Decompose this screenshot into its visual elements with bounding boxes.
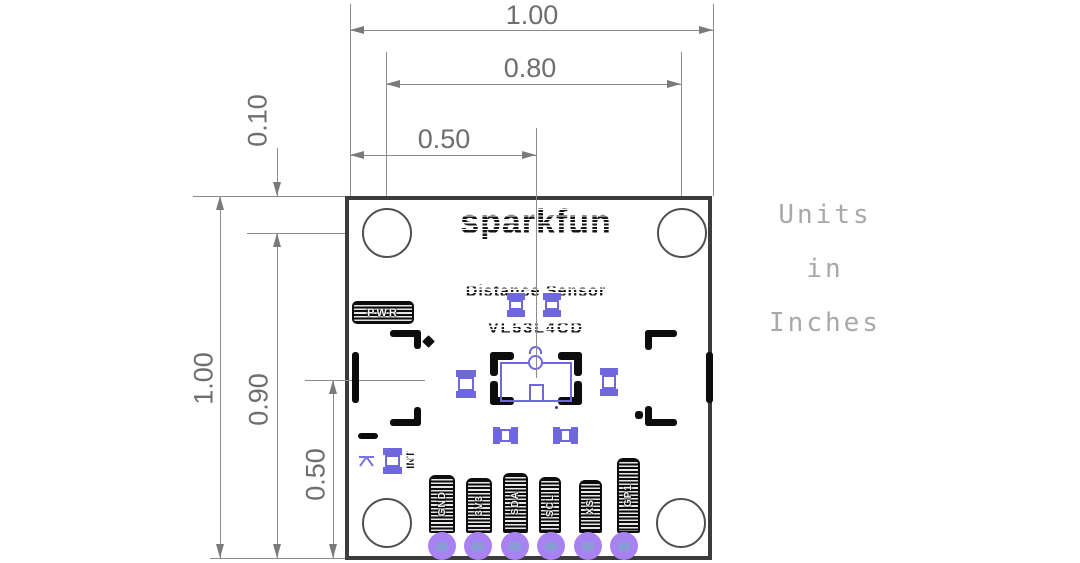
dim-top-full-label: 1.00 bbox=[496, 2, 568, 29]
arrow-left-icon bbox=[350, 151, 364, 159]
dim-left-holes-label: 0.90 bbox=[246, 364, 273, 436]
dim-left-center-label: 0.50 bbox=[303, 439, 330, 511]
arrow-down-icon bbox=[273, 544, 281, 558]
pin-label-scl: SCL bbox=[539, 477, 561, 533]
extension-line-board-middle bbox=[305, 380, 425, 381]
qwiic-connector-right bbox=[706, 352, 713, 403]
bracket-icon bbox=[645, 419, 677, 426]
smd-pad bbox=[507, 293, 525, 317]
dim-left-holes-line bbox=[277, 233, 278, 558]
jumper-label: INT bbox=[403, 441, 419, 478]
arrow-right-icon bbox=[699, 26, 713, 34]
dim-top-holes-line bbox=[386, 84, 681, 85]
mounting-hole-top-right bbox=[657, 208, 707, 258]
pin-label-gnd: GND bbox=[429, 475, 455, 533]
arrow-down-icon bbox=[216, 544, 224, 558]
arrow-up-icon bbox=[216, 196, 224, 210]
bracket-icon bbox=[645, 330, 652, 350]
pin-label-gp1: GP1 bbox=[617, 458, 640, 533]
jumper-cross-icon bbox=[357, 454, 376, 469]
arrow-left-icon bbox=[350, 26, 364, 34]
smd-pad bbox=[553, 427, 578, 444]
sensor-bracket-icon bbox=[574, 352, 582, 376]
arrow-up-icon bbox=[329, 380, 337, 394]
dim-left-center-line bbox=[333, 380, 334, 558]
silkscreen-dot bbox=[555, 406, 558, 409]
arrow-down-icon bbox=[329, 544, 337, 558]
smd-pad bbox=[543, 293, 561, 317]
qwiic-connector-left bbox=[352, 352, 359, 403]
power-led-label: PWR bbox=[352, 301, 414, 324]
units-note-line: in bbox=[745, 242, 905, 296]
dim-left-full-label: 1.00 bbox=[191, 343, 218, 415]
bracket-icon bbox=[414, 330, 421, 349]
extension-line-board-bottom bbox=[210, 558, 345, 559]
dim-top-center-label: 0.50 bbox=[408, 126, 480, 153]
mounting-hole-bottom-left bbox=[362, 498, 412, 548]
arrow-up-icon bbox=[273, 233, 281, 247]
pin-label-sda: SDA bbox=[503, 473, 528, 533]
arrow-left-icon bbox=[386, 80, 400, 88]
pin-label-xs: XS bbox=[579, 480, 602, 533]
arrow-down-icon bbox=[273, 182, 281, 196]
smd-pad bbox=[456, 370, 476, 398]
mounting-hole-top-left bbox=[362, 208, 412, 258]
mounting-hole-bottom-right bbox=[656, 498, 706, 548]
bracket-icon bbox=[390, 419, 421, 426]
dim-left-full-line bbox=[220, 196, 221, 558]
dim-left-offset-label: 0.10 bbox=[245, 85, 272, 157]
th-pad bbox=[501, 532, 529, 560]
polarity-dot-icon bbox=[635, 411, 643, 419]
th-pad bbox=[428, 532, 456, 560]
center-line bbox=[536, 128, 537, 378]
arrow-right-icon bbox=[667, 80, 681, 88]
sensor-bracket-icon bbox=[490, 352, 498, 376]
silkscreen-dash bbox=[358, 433, 378, 439]
units-note: Units in Inches bbox=[745, 188, 905, 350]
th-pad bbox=[464, 532, 492, 560]
smd-pad bbox=[383, 448, 402, 474]
dim-top-holes-label: 0.80 bbox=[494, 55, 566, 82]
th-pad bbox=[610, 532, 638, 560]
dimensional-drawing: 1.00 0.80 0.50 0.10 1.00 0.90 0.50 spark… bbox=[0, 0, 1080, 563]
units-note-line: Units bbox=[745, 188, 905, 242]
th-pad bbox=[537, 532, 565, 560]
pin-label-3v3: 3V3 bbox=[466, 478, 492, 533]
sensor-notch bbox=[529, 384, 544, 402]
extension-line-hole-top bbox=[247, 233, 345, 234]
units-note-line: Inches bbox=[745, 296, 905, 350]
arrow-right-icon bbox=[522, 151, 536, 159]
dim-top-full-line bbox=[350, 30, 713, 31]
smd-pad bbox=[493, 427, 518, 444]
dim-top-center-line bbox=[350, 155, 536, 156]
smd-pad bbox=[600, 368, 618, 396]
th-pad bbox=[574, 532, 602, 560]
extension-line-board-right bbox=[713, 4, 714, 196]
